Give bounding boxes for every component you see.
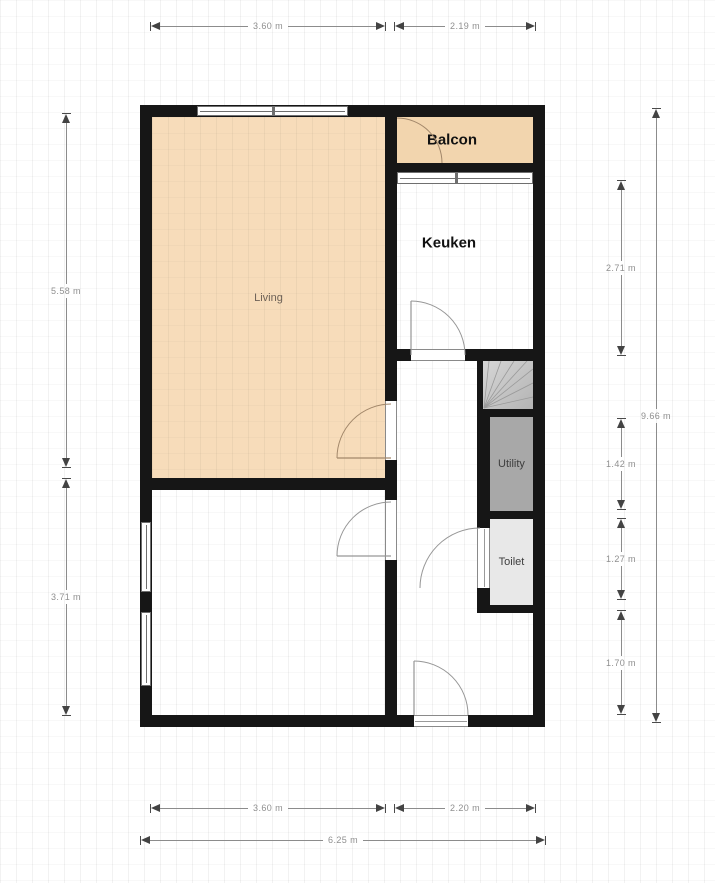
room-label-keuken: Keuken [422,235,476,252]
dimension-label: 3.71 m [51,590,81,604]
arrow-up-icon [617,611,625,620]
dimension-line [150,840,323,841]
stairs[interactable] [477,361,533,409]
dimension-tick [617,355,626,356]
arrow-right-icon [376,22,385,30]
window-living-top[interactable] [197,106,348,116]
dimension-line [66,604,67,706]
room-hallway[interactable] [397,361,477,715]
dimension-left-living-height: 5.58 m [44,113,88,468]
dimension-label: 5.58 m [51,284,81,298]
room-label-utility: Utility [498,458,525,470]
window-pane-line [146,525,147,589]
dimension-tick [535,22,536,31]
room-living[interactable]: Living [152,117,385,478]
arrow-right-icon [536,836,545,844]
dimension-right-total-height: 9.66 m [634,108,678,723]
dimension-line [621,471,622,500]
arrow-left-icon [151,22,160,30]
dimension-label: 1.70 m [606,656,636,670]
arrow-up-icon [62,114,70,123]
dimension-line [288,808,376,809]
room-keuken[interactable]: Keuken [397,184,533,349]
arrow-up-icon [652,109,660,118]
dimension-line [160,808,248,809]
dimension-label: 2.20 m [445,803,485,813]
stairs-fan-icon [483,361,533,409]
door-threshold-line [415,721,467,722]
dimension-label: 3.60 m [248,803,288,813]
door-opening-keuken[interactable] [411,349,465,361]
dimension-line [66,123,67,284]
dimension-left-lower-height: 3.71 m [44,478,88,716]
room-label-balcon: Balcon [427,132,477,149]
dimension-line [621,275,622,346]
dimension-label: 2.71 m [606,261,636,275]
dimension-tick [545,836,546,845]
wall-bottom-exterior [140,715,545,727]
wall-living-lower [140,478,397,490]
dimension-line [656,118,657,409]
door-leaf-line [484,529,485,587]
dimension-line [621,566,622,590]
dimension-line [66,488,67,590]
dimension-tick [617,599,626,600]
arrow-left-icon [395,804,404,812]
dimension-label: 6.25 m [323,835,363,845]
arrow-up-icon [617,419,625,428]
dimension-tick [535,804,536,813]
dimension-line [363,840,536,841]
arrow-left-icon [141,836,150,844]
dimension-line [621,528,622,552]
dimension-line [404,808,445,809]
window-mullion [455,173,458,183]
arrow-down-icon [617,705,625,714]
dimension-line [621,428,622,457]
dimension-line [485,808,526,809]
arrow-down-icon [617,590,625,599]
room-label-toilet: Toilet [499,556,525,568]
window-lower-left-2[interactable] [141,612,151,686]
dimension-line [485,26,526,27]
dimension-tick [617,714,626,715]
arrow-left-icon [151,804,160,812]
door-opening-living[interactable] [385,401,397,460]
window-mullion [272,107,275,115]
arrow-right-icon [526,22,535,30]
dimension-line [621,670,622,706]
window-pane-line [400,178,530,179]
door-opening-lower[interactable] [385,500,397,560]
room-toilet[interactable]: Toilet [490,519,533,605]
dimension-label: 9.66 m [641,409,671,423]
dimension-label: 1.27 m [606,552,636,566]
arrow-up-icon [62,479,70,488]
dimension-top-living-width: 3.60 m [150,20,386,32]
arrow-left-icon [395,22,404,30]
dimension-bottom-total-width: 6.25 m [140,834,546,846]
dimension-label: 3.60 m [248,21,288,31]
arrow-up-icon [617,181,625,190]
arrow-up-icon [617,519,625,528]
window-lower-left-1[interactable] [141,522,151,592]
door-opening-front[interactable] [414,715,468,727]
dimension-line [656,423,657,714]
dimension-line [621,190,622,261]
arrow-right-icon [526,804,535,812]
room-lower[interactable] [152,490,385,715]
dimension-tick [617,509,626,510]
dimension-line [404,26,445,27]
arrow-down-icon [62,458,70,467]
dimension-line [621,620,622,656]
dimension-bottom-right-width: 2.20 m [394,802,536,814]
arrow-down-icon [62,706,70,715]
arrow-down-icon [617,346,625,355]
dimension-tick [385,22,386,31]
arrow-down-icon [617,500,625,509]
arrow-right-icon [376,804,385,812]
dimension-tick [62,715,71,716]
room-label-living: Living [254,292,283,304]
dimension-label: 2.19 m [445,21,485,31]
wall-balcon-bottom [385,163,545,172]
dimension-label: 1.42 m [606,457,636,471]
dimension-line [288,26,376,27]
dimension-tick [385,804,386,813]
door-opening-toilet[interactable] [477,528,490,588]
dimension-line [160,26,248,27]
dimension-top-right-width: 2.19 m [394,20,536,32]
room-balcon[interactable]: Balcon [397,117,533,163]
floor-plan-canvas: Living Balcon Keuken Utility Toilet [0,0,715,883]
dimension-line [66,298,67,459]
arrow-down-icon [652,713,660,722]
dimension-bottom-left-width: 3.60 m [150,802,386,814]
window-balcon-keuken[interactable] [397,172,533,184]
wall-below-stairs [477,409,545,417]
dimension-tick [652,722,661,723]
window-pane-line [146,615,147,683]
dimension-tick [62,467,71,468]
room-utility[interactable]: Utility [490,417,533,511]
